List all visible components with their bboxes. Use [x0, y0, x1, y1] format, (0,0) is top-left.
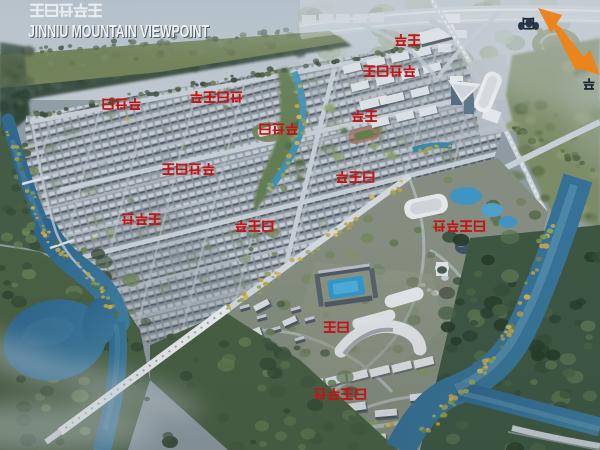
svg-text:JINNIU MOUNTAIN VIEWPOINT: JINNIU MOUNTAIN VIEWPOINT: [28, 21, 209, 41]
